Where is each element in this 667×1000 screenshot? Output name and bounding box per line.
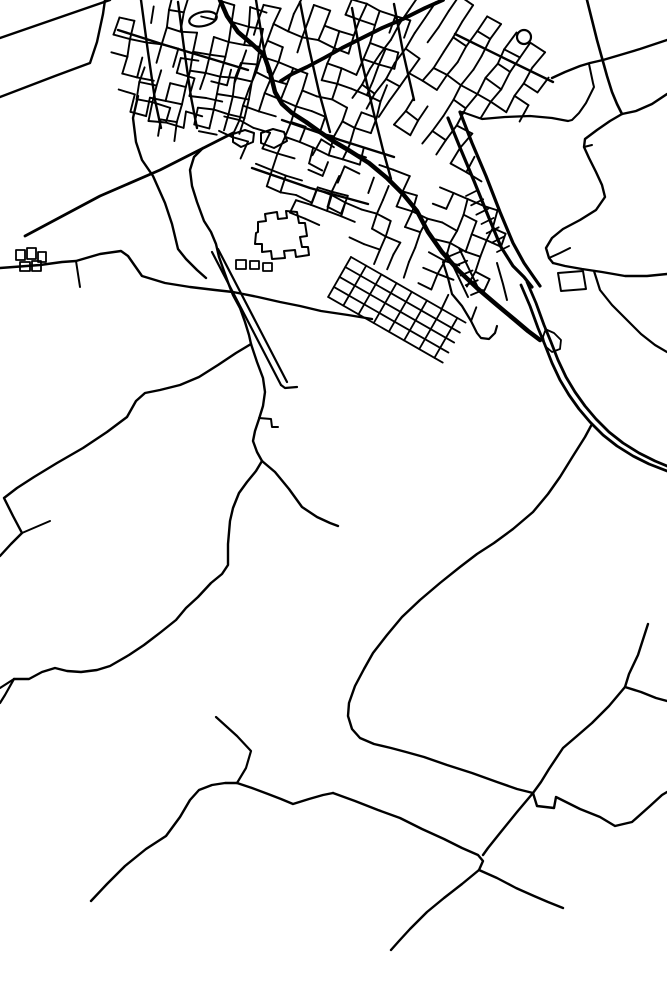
street-segment xyxy=(406,33,415,49)
street-segment xyxy=(355,112,362,128)
street-segment xyxy=(415,18,425,33)
y-junction-southwest-arm xyxy=(533,687,625,793)
street-segment xyxy=(451,164,467,173)
street-segment xyxy=(443,100,453,117)
street-segment xyxy=(428,219,443,223)
street-segment xyxy=(473,56,481,70)
street-segment xyxy=(372,214,377,229)
field-row xyxy=(334,287,449,353)
street-segment xyxy=(454,85,461,99)
street-segment xyxy=(352,85,362,98)
nw-diagonal-2 xyxy=(0,0,105,97)
parallel-pair-2 xyxy=(460,112,540,286)
street-segment xyxy=(332,176,340,192)
street-segment xyxy=(444,37,454,52)
street-segment xyxy=(167,10,169,27)
street-segment xyxy=(477,31,490,39)
street-segment xyxy=(405,227,420,232)
street-segment xyxy=(409,59,420,74)
nw-diagonal-1 xyxy=(0,0,110,38)
street-segment xyxy=(532,52,545,67)
street-segment xyxy=(486,78,502,90)
street-segment xyxy=(504,49,520,57)
street-segment xyxy=(346,0,352,15)
street-segment xyxy=(122,74,137,78)
street-segment xyxy=(406,98,414,111)
street-segment xyxy=(393,243,400,255)
street-segment xyxy=(393,170,410,176)
street-segment xyxy=(434,52,444,68)
street-segment xyxy=(459,0,473,5)
small-block-loop xyxy=(558,271,586,291)
blob2-outline xyxy=(261,129,287,148)
street-segment xyxy=(442,222,457,231)
street-segment xyxy=(375,11,380,25)
small-block xyxy=(263,263,272,271)
street-segment xyxy=(373,65,379,81)
street-segment xyxy=(383,186,389,200)
street-segment xyxy=(409,73,422,81)
street-segment xyxy=(114,35,131,40)
street-segment xyxy=(334,31,339,48)
y-junction-east-arm xyxy=(625,687,667,701)
street-segment xyxy=(477,94,490,102)
street-segment xyxy=(229,96,233,114)
street-segment xyxy=(481,102,491,118)
street-segment xyxy=(341,216,355,222)
street-segment xyxy=(434,68,448,75)
street-segment xyxy=(397,207,413,212)
street-segment xyxy=(272,154,278,171)
rural-connector xyxy=(237,783,333,804)
ladder-rung xyxy=(466,190,478,196)
street-segment xyxy=(374,250,380,264)
highway-branch-southwest xyxy=(348,424,592,793)
street-segment xyxy=(451,148,460,164)
street-segment xyxy=(449,0,459,11)
street-segment xyxy=(177,58,181,73)
street-segment xyxy=(259,111,276,116)
street-segment xyxy=(214,110,229,115)
street-segment xyxy=(235,78,252,82)
street-segment xyxy=(157,44,162,63)
cross-southwest-arm xyxy=(483,793,533,855)
street-segment xyxy=(466,94,478,108)
street-segment xyxy=(472,234,487,240)
street-segment xyxy=(169,0,174,10)
street-segment xyxy=(447,62,458,75)
street-segment xyxy=(394,111,406,125)
street-segment xyxy=(475,257,480,272)
street-segment xyxy=(352,0,367,4)
street-segment xyxy=(498,64,510,72)
street-segment xyxy=(279,62,294,68)
street-segment xyxy=(127,39,130,57)
street-segment xyxy=(206,98,222,102)
street-segment xyxy=(501,72,510,90)
street-segment xyxy=(438,274,454,280)
street-segment xyxy=(220,57,225,77)
street-segment xyxy=(342,68,357,75)
kink-road xyxy=(568,64,594,121)
street-segment xyxy=(274,24,289,32)
street-segment xyxy=(311,205,327,211)
boundary-spur xyxy=(76,261,80,287)
street-segment xyxy=(350,237,365,244)
street-segment xyxy=(166,101,182,104)
street-segment xyxy=(193,33,197,52)
street-segment xyxy=(267,186,281,192)
south-diagonal xyxy=(333,793,483,870)
street-segment xyxy=(302,91,316,97)
street-segment xyxy=(312,111,325,117)
street-segment xyxy=(466,252,481,257)
street-segment xyxy=(217,77,220,94)
street-segment xyxy=(367,4,380,11)
nw-farm-block xyxy=(16,250,25,260)
street-segment xyxy=(410,121,418,136)
street-segment xyxy=(309,163,322,170)
street-segment xyxy=(232,5,235,22)
street-segment xyxy=(491,89,502,101)
street-segment xyxy=(337,68,341,84)
highway-line-2 xyxy=(521,285,667,471)
field-top-road xyxy=(462,112,568,121)
street-segment xyxy=(461,85,478,94)
small-block xyxy=(250,261,259,269)
street-segment xyxy=(491,102,507,113)
street-segment xyxy=(409,248,415,262)
street-segment xyxy=(173,49,178,67)
street-segment xyxy=(214,94,217,110)
town-cross-2 xyxy=(252,168,368,204)
south-branch-southeast xyxy=(479,870,563,908)
winding-south-road xyxy=(190,148,265,461)
street-segment xyxy=(190,71,206,73)
east-wavy-road xyxy=(553,263,667,276)
street-segment xyxy=(317,96,333,99)
street-segment xyxy=(386,221,391,237)
street-segment xyxy=(296,91,302,107)
street-segment xyxy=(437,75,447,90)
street-segment xyxy=(454,100,466,109)
street-segment xyxy=(515,84,524,96)
street-segment xyxy=(486,64,498,78)
street-segment xyxy=(377,214,391,221)
street-segment xyxy=(380,11,396,16)
street-segment xyxy=(477,16,487,31)
street-segment xyxy=(410,0,422,9)
highway-line-1 xyxy=(527,282,667,466)
street-segment xyxy=(337,84,351,89)
street-segment xyxy=(329,155,343,159)
street-segment xyxy=(381,85,388,101)
southeast-thin-road xyxy=(594,271,667,352)
street-segment xyxy=(389,86,400,101)
street-segment xyxy=(405,211,412,227)
street-segment xyxy=(325,26,340,32)
field-row xyxy=(328,297,443,363)
street-segment xyxy=(342,121,354,128)
street-segment xyxy=(477,78,485,94)
street-segment xyxy=(368,178,374,193)
street-segment xyxy=(114,18,120,35)
street-segment xyxy=(432,116,443,131)
street-segment xyxy=(285,122,291,137)
winding-southwest xyxy=(14,461,262,679)
street-segment xyxy=(431,274,437,290)
y-junction-north-arm xyxy=(625,624,648,687)
street-segment xyxy=(345,203,361,210)
street-segment xyxy=(274,9,281,24)
jog-and-s-curve-east xyxy=(533,792,667,826)
street-segment xyxy=(190,52,193,71)
street-segment xyxy=(177,104,182,122)
ne-artery xyxy=(281,0,443,81)
street-segment xyxy=(423,68,434,81)
street-segment xyxy=(406,49,420,59)
street-segment xyxy=(415,232,420,247)
map-canvas xyxy=(0,0,667,1000)
street-segment xyxy=(466,234,472,251)
street-segment xyxy=(217,94,233,96)
street-map xyxy=(0,0,667,1000)
stub-to-junction xyxy=(216,717,251,783)
street-segment xyxy=(279,47,283,62)
street-segment xyxy=(332,84,337,100)
street-segment xyxy=(318,40,334,48)
street-segment xyxy=(232,137,248,142)
street-segment xyxy=(305,219,319,225)
street-segment xyxy=(300,142,314,148)
street-segment xyxy=(206,73,221,77)
street-segment xyxy=(220,77,235,78)
curve-to-west xyxy=(0,344,251,556)
street-segment xyxy=(184,112,186,128)
street-segment xyxy=(166,123,184,128)
street-segment xyxy=(423,268,437,274)
street-segment xyxy=(355,128,371,133)
street-segment xyxy=(386,79,400,86)
street-segment xyxy=(262,149,277,154)
street-segment xyxy=(241,63,257,64)
street-segment xyxy=(447,75,461,85)
street-segment xyxy=(377,200,383,214)
west-spur xyxy=(22,521,50,533)
street-segment xyxy=(475,272,489,280)
street-segment xyxy=(229,42,244,45)
street-segment xyxy=(198,108,214,110)
street-segment xyxy=(311,189,317,204)
street-segment xyxy=(130,21,134,39)
southwest-rural-road xyxy=(91,783,237,901)
field-grid xyxy=(328,257,465,363)
street-segment xyxy=(111,52,127,56)
street-segment xyxy=(199,131,217,135)
street-segment xyxy=(157,70,162,85)
street-segment xyxy=(394,125,410,136)
street-segment xyxy=(403,176,410,191)
street-segment xyxy=(428,28,439,43)
street-segment xyxy=(240,50,246,67)
street-segment xyxy=(380,237,386,250)
street-segment xyxy=(318,26,324,40)
street-segment xyxy=(323,162,328,176)
street-segment xyxy=(457,215,464,231)
street-segment xyxy=(167,27,181,31)
street-segment xyxy=(181,58,199,61)
fork-spur xyxy=(549,248,570,258)
street-segment xyxy=(182,87,186,104)
street-segment xyxy=(438,11,449,28)
short-street-south xyxy=(497,263,507,300)
street-segment xyxy=(339,31,354,35)
street-segment xyxy=(162,27,167,44)
double-track-a xyxy=(212,252,281,385)
street-segment xyxy=(363,43,370,59)
ne-corner-road xyxy=(552,40,667,78)
street-segment xyxy=(372,229,386,237)
street-segment xyxy=(360,20,376,25)
street-segment xyxy=(458,46,467,62)
street-segment xyxy=(361,209,377,213)
small-block xyxy=(236,260,246,269)
street-segment xyxy=(490,24,501,39)
street-segment xyxy=(151,7,154,24)
street-segment xyxy=(280,192,296,195)
street-segment xyxy=(436,140,446,154)
street-segment xyxy=(342,108,347,122)
south-boundary-road xyxy=(0,251,372,319)
street-segment xyxy=(296,106,312,111)
winding-southeast xyxy=(262,461,338,526)
street-segment xyxy=(120,18,135,21)
street-segment xyxy=(387,255,393,270)
street-segment xyxy=(506,96,514,112)
street-segment xyxy=(472,221,477,234)
street-segment xyxy=(267,24,273,41)
street-segment xyxy=(464,215,477,222)
street-segment xyxy=(418,106,428,120)
street-segment xyxy=(267,41,282,48)
street-segment xyxy=(515,96,529,105)
street-segment xyxy=(314,5,330,11)
street-segment xyxy=(288,14,294,32)
street-segment xyxy=(404,262,409,278)
street-segment xyxy=(432,131,445,140)
street-segment xyxy=(386,63,395,79)
street-segment xyxy=(278,154,295,159)
street-segment xyxy=(480,240,486,256)
street-segment xyxy=(504,33,516,50)
street-segment xyxy=(446,193,453,209)
street-segment xyxy=(297,37,302,52)
street-segment xyxy=(149,121,166,123)
street-segment xyxy=(487,16,501,24)
street-segment xyxy=(440,187,454,193)
street-segment xyxy=(418,283,431,289)
street-segment xyxy=(471,307,476,320)
street-segment xyxy=(281,84,287,99)
street-segment xyxy=(309,5,314,20)
street-segment xyxy=(265,79,271,93)
double-track-hook xyxy=(281,385,297,388)
south-branch-southwest xyxy=(391,870,479,950)
street-segment xyxy=(210,55,225,57)
street-segment xyxy=(325,11,331,26)
street-segment xyxy=(308,170,322,176)
street-segment xyxy=(524,84,538,93)
street-segment xyxy=(302,74,307,91)
street-segment xyxy=(322,63,328,80)
street-segment xyxy=(334,121,342,136)
street-segment xyxy=(201,17,215,20)
parallel-pair-1 xyxy=(448,118,532,287)
street-segment xyxy=(461,70,474,86)
street-segment xyxy=(406,111,418,121)
small-spur xyxy=(259,418,278,427)
street-segment xyxy=(422,131,432,144)
street-segment xyxy=(209,110,214,129)
field-row xyxy=(340,277,455,343)
street-segment xyxy=(259,93,265,111)
street-segment xyxy=(200,73,206,89)
street-segment xyxy=(288,31,302,37)
major-roads xyxy=(0,0,667,950)
street-segment xyxy=(338,166,345,182)
street-segment xyxy=(386,49,399,53)
street-segment xyxy=(370,43,386,49)
street-segment xyxy=(450,231,457,243)
street-segment xyxy=(520,105,529,121)
street-segment xyxy=(302,37,318,40)
roundabout-circle xyxy=(517,30,531,44)
street-segment xyxy=(441,295,448,310)
street-segment xyxy=(343,159,360,164)
street-segment xyxy=(122,57,127,74)
street-segment xyxy=(249,7,250,27)
street-segment xyxy=(462,5,473,21)
street-segment xyxy=(166,83,171,101)
street-segment xyxy=(264,5,281,9)
street-segment xyxy=(170,83,186,87)
street-segment xyxy=(530,43,545,53)
street-segment xyxy=(169,10,184,12)
street-segment xyxy=(464,199,468,215)
street-segment xyxy=(364,244,380,250)
street-segment xyxy=(119,90,135,95)
street-segment xyxy=(327,63,341,68)
street-segment xyxy=(433,204,447,209)
nw-farm-block xyxy=(27,248,36,259)
street-segment xyxy=(423,81,437,90)
street-segment xyxy=(360,4,367,20)
street-segment xyxy=(332,99,347,107)
street-segment xyxy=(345,166,360,173)
street-segment xyxy=(214,37,229,42)
street-segment xyxy=(210,37,214,55)
field-row xyxy=(345,267,460,333)
street-segment xyxy=(386,237,401,243)
street-segment xyxy=(184,0,189,12)
street-segment xyxy=(322,80,338,84)
street-segment xyxy=(177,73,195,79)
block-cluster-outline xyxy=(255,211,309,259)
street-segment xyxy=(483,279,489,293)
street-segment xyxy=(404,20,410,37)
landmark-shapes xyxy=(16,9,531,271)
street-segment xyxy=(450,243,466,252)
